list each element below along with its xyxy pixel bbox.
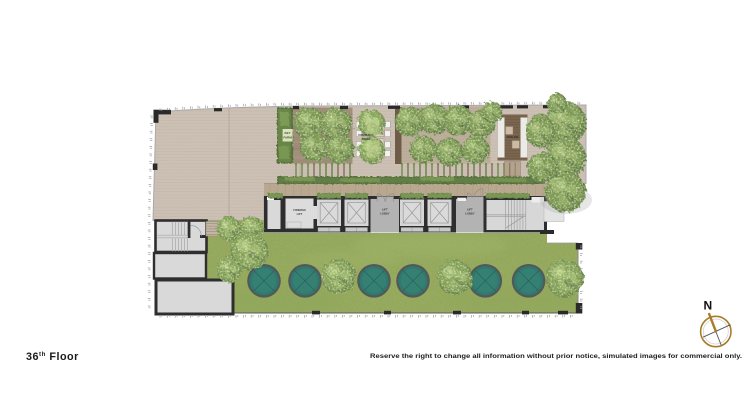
svg-text:LOBBY: LOBBY xyxy=(465,212,475,216)
svg-text:36th Floor: 36th Floor xyxy=(26,351,79,363)
svg-text:LIFT: LIFT xyxy=(467,208,473,212)
svg-text:PAVILION: PAVILION xyxy=(507,135,519,139)
svg-text:Reserve the right to change al: Reserve the right to change all informat… xyxy=(370,353,742,360)
svg-text:LOBBY: LOBBY xyxy=(380,212,390,216)
svg-text:COMMUNAL: COMMUNAL xyxy=(358,133,374,137)
svg-text:KEY: KEY xyxy=(285,131,291,135)
svg-text:LIFT: LIFT xyxy=(382,208,388,212)
svg-text:TABLE: TABLE xyxy=(362,137,371,141)
svg-text:FARM: FARM xyxy=(283,135,292,139)
svg-text:FIREMAN: FIREMAN xyxy=(293,208,305,212)
svg-text:LIFT: LIFT xyxy=(297,212,303,216)
svg-text:N: N xyxy=(704,299,713,313)
